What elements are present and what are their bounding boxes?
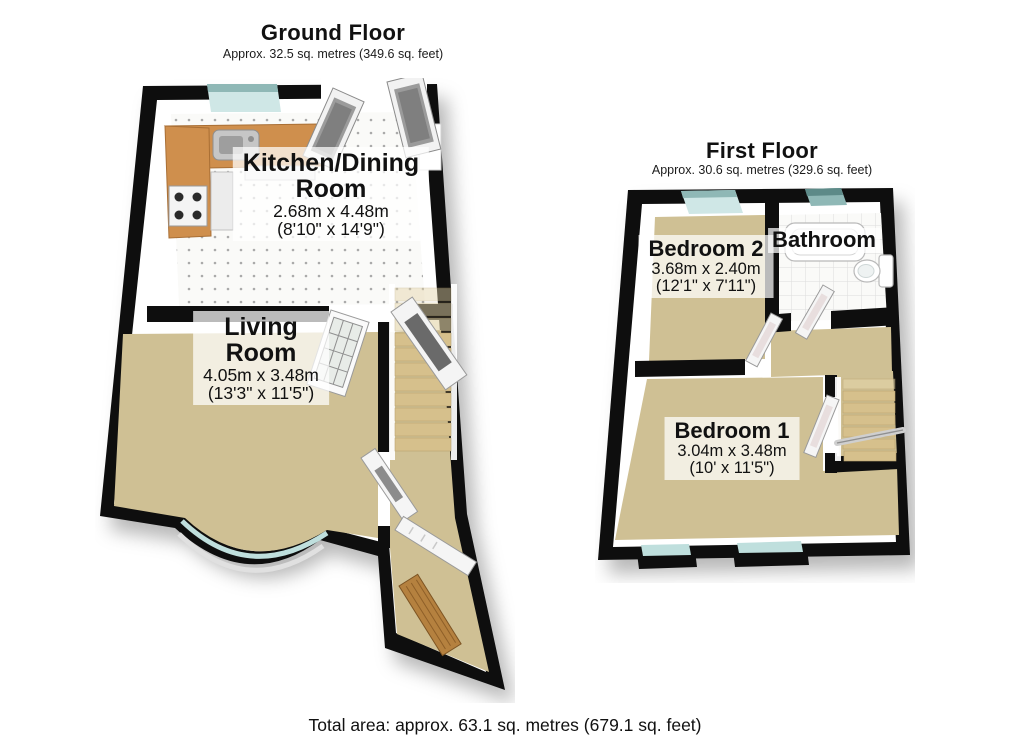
- bathroom-label: Bathroom: [768, 228, 880, 253]
- living-dim-imperial: (13'3" x 11'5"): [203, 384, 319, 402]
- bathroom-window: [805, 188, 847, 206]
- kitchen-name-line1: Kitchen/Dining: [243, 150, 419, 176]
- bedroom1-dim-metric: 3.04m x 3.48m: [675, 443, 790, 460]
- kitchen-dim-metric: 2.68m x 4.48m: [243, 202, 419, 220]
- living-name-line2: Room: [203, 340, 319, 366]
- kitchen-hob: [169, 186, 207, 226]
- living-dim-metric: 4.05m x 3.48m: [203, 366, 319, 384]
- bedroom2-dim-metric: 3.68m x 2.40m: [649, 261, 764, 278]
- bedroom1-dim-imperial: (10' x 11'5"): [675, 460, 790, 477]
- bedroom1-window-left: [641, 544, 691, 556]
- bedroom1-label: Bedroom 1 3.04m x 3.48m (10' x 11'5"): [665, 417, 800, 480]
- first-floor-subtitle: Approx. 30.6 sq. metres (329.6 sq. feet): [652, 163, 872, 177]
- total-area-text: Total area: approx. 63.1 sq. metres (679…: [309, 715, 702, 736]
- floorplan-canvas: Ground Floor Approx. 32.5 sq. metres (34…: [0, 0, 1024, 745]
- bedroom2-name: Bedroom 2: [649, 238, 764, 261]
- kitchen-appliance-front: [211, 172, 233, 230]
- living-hall-wall-stub: [378, 526, 390, 548]
- bedroom1-name: Bedroom 1: [675, 420, 790, 443]
- kitchen-label: Kitchen/Dining Room 2.68m x 4.48m (8'10"…: [233, 147, 429, 241]
- bedroom2-dim-imperial: (12'1" x 7'11"): [649, 278, 764, 295]
- landing-floor: [771, 327, 892, 377]
- bedroom2-window: [681, 190, 743, 214]
- kitchen-window: [207, 84, 281, 112]
- living-name-line1: Living: [203, 314, 319, 340]
- ground-floor-subtitle: Approx. 32.5 sq. metres (349.6 sq. feet): [223, 47, 443, 61]
- bedroom2-bottom-wall: [635, 359, 745, 377]
- ground-floor-title: Ground Floor: [261, 20, 405, 46]
- bedroom2-label: Bedroom 2 3.68m x 2.40m (12'1" x 7'11"): [639, 235, 774, 298]
- kitchen-name-line2: Room: [243, 176, 419, 202]
- bedroom1-window-right: [737, 541, 803, 553]
- living-hall-wall: [378, 322, 390, 452]
- bathroom-name: Bathroom: [772, 229, 876, 252]
- kitchen-dim-imperial: (8'10" x 14'9"): [243, 220, 419, 238]
- living-room-label: Living Room 4.05m x 3.48m (13'3" x 11'5"…: [193, 311, 329, 405]
- first-floor-title: First Floor: [706, 138, 818, 164]
